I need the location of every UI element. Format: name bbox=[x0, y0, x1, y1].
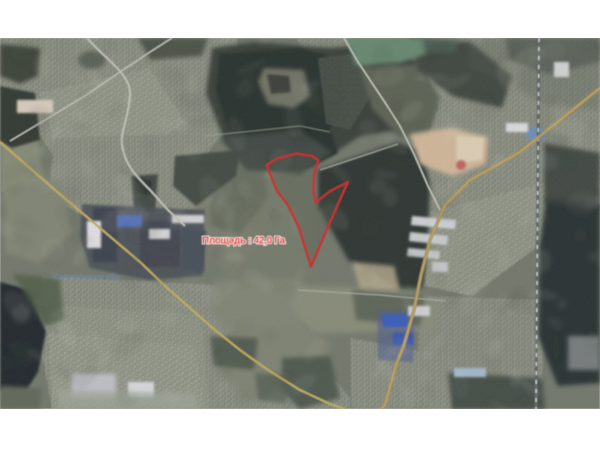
svg-text:Садоводческое общ.: Садоводческое общ. bbox=[54, 273, 122, 281]
svg-text:Площадь : 42,0 Га: Площадь : 42,0 Га bbox=[202, 236, 285, 247]
